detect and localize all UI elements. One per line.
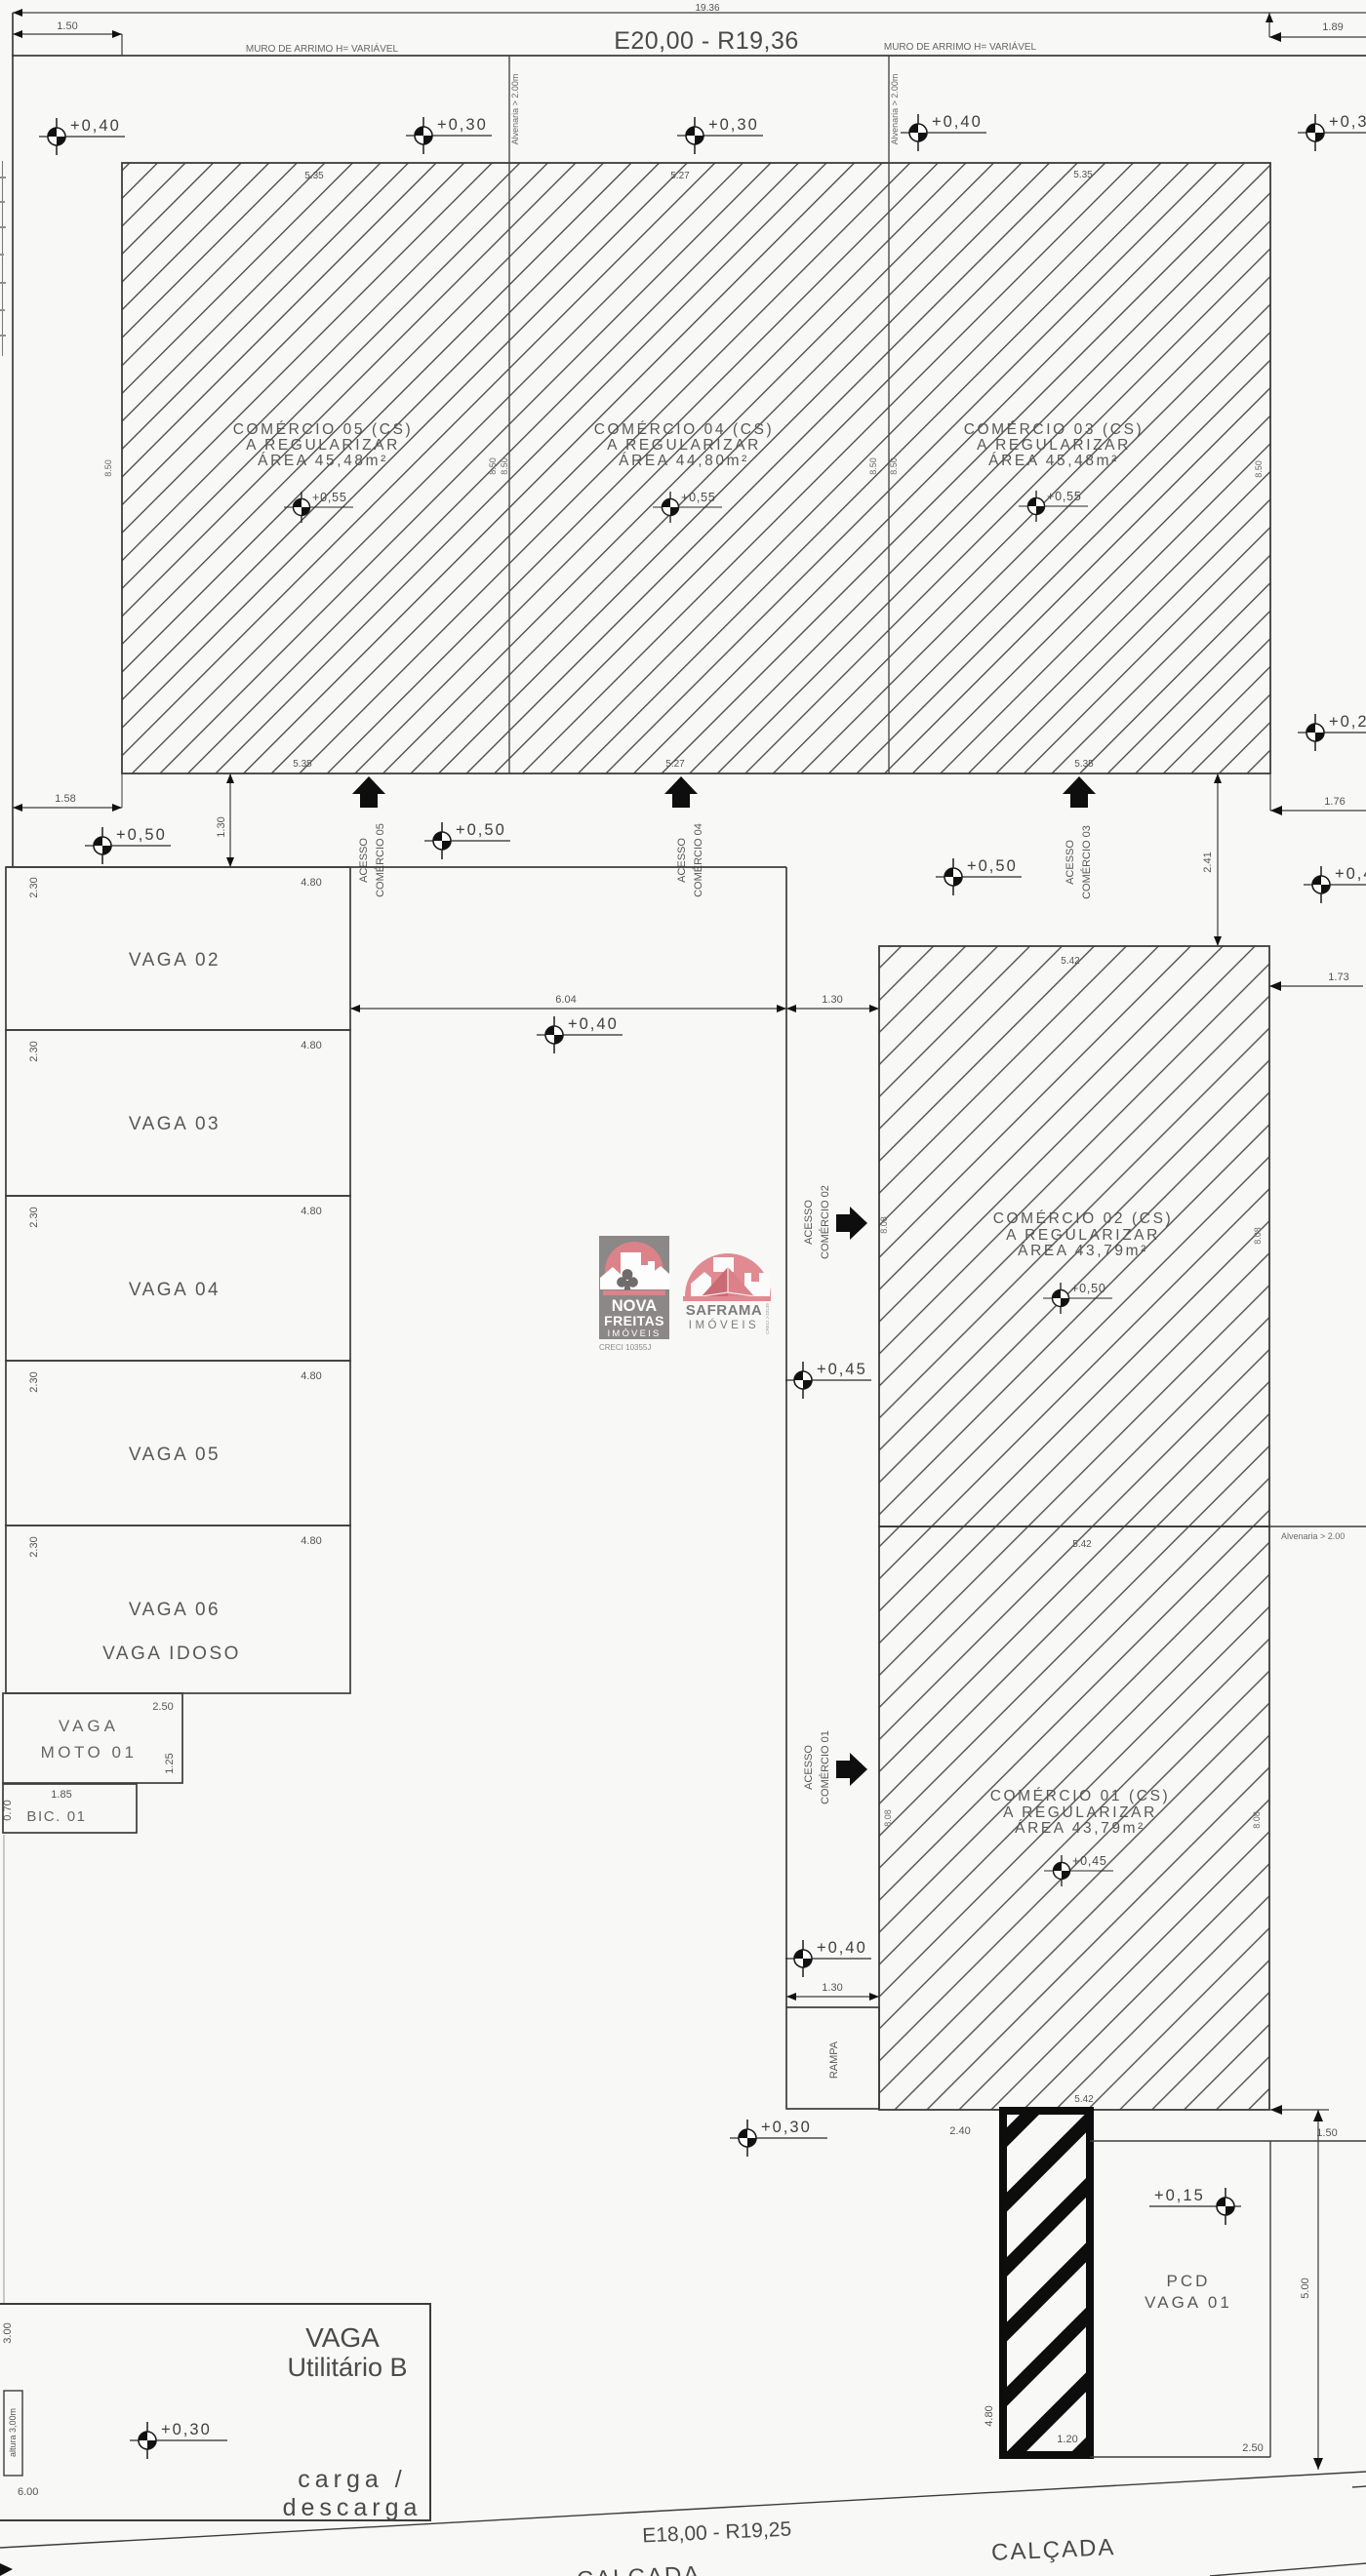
svg-text:8.08: 8.08 [879, 1216, 889, 1234]
svg-text:+0,25: +0,25 [1329, 713, 1366, 731]
svg-text:ACESSO: ACESSO [676, 838, 688, 883]
svg-text:COMÉRCIO 02 (CS): COMÉRCIO 02 (CS) [993, 1210, 1174, 1227]
svg-text:Alvenaria > 2.00m: Alvenaria > 2.00m [510, 74, 520, 145]
svg-text:ÁREA 44,80m²: ÁREA 44,80m² [619, 453, 749, 469]
svg-text:5.27: 5.27 [665, 759, 685, 770]
svg-text:COMÉRCIO 04: COMÉRCIO 04 [692, 823, 704, 897]
svg-text:5.35: 5.35 [304, 171, 324, 181]
svg-text:1.89: 1.89 [1322, 21, 1343, 33]
svg-text:5.35: 5.35 [293, 759, 312, 770]
svg-text:2.40: 2.40 [949, 2125, 970, 2137]
svg-text:SAFRAMA: SAFRAMA [686, 1302, 763, 1319]
svg-text:descarga: descarga [283, 2494, 422, 2521]
svg-text:ÁREA 43,79m²: ÁREA 43,79m² [1015, 1820, 1145, 1837]
svg-text:2.41: 2.41 [1202, 852, 1214, 872]
svg-text:8.50: 8.50 [103, 459, 113, 477]
svg-text:5.42: 5.42 [1061, 956, 1080, 967]
svg-text:CRECI J-23139: CRECI J-23139 [765, 1303, 770, 1334]
svg-text:+0,55: +0,55 [312, 491, 347, 504]
svg-text:COMÉRCIO 02: COMÉRCIO 02 [819, 1185, 831, 1259]
svg-text:+0,50: +0,50 [116, 826, 167, 844]
svg-text:VAGA IDOSO: VAGA IDOSO [102, 1644, 241, 1664]
svg-text:COMÉRCIO 03: COMÉRCIO 03 [1080, 825, 1093, 899]
svg-text:8.50: 8.50 [488, 457, 498, 475]
svg-text:FREITAS: FREITAS [604, 1313, 664, 1328]
svg-text:ÁREA 45,48m²: ÁREA 45,48m² [258, 453, 388, 469]
svg-text:COMÉRCIO 05 (CS): COMÉRCIO 05 (CS) [233, 421, 414, 438]
svg-text:2.30: 2.30 [28, 1041, 40, 1061]
svg-text:VAGA 04: VAGA 04 [129, 1280, 221, 1300]
svg-text:5.35: 5.35 [1073, 170, 1093, 180]
svg-text:VAGA 03: VAGA 03 [129, 1114, 221, 1134]
svg-text:1.30: 1.30 [216, 816, 227, 837]
svg-text:8.08: 8.08 [883, 1809, 893, 1827]
svg-text:COMÉRCIO 04 (CS): COMÉRCIO 04 (CS) [594, 421, 775, 438]
svg-text:+0,30: +0,30 [161, 2421, 212, 2438]
svg-text:8.50: 8.50 [1254, 460, 1264, 478]
svg-text:E20,00 - R19,36: E20,00 - R19,36 [614, 27, 799, 55]
svg-text:BIC. 01: BIC. 01 [26, 1808, 86, 1825]
svg-text:A REGULARIZAR: A REGULARIZAR [607, 437, 761, 454]
svg-text:+0,50: +0,50 [967, 857, 1018, 875]
svg-text:COMÉRCIO 03 (CS): COMÉRCIO 03 (CS) [964, 421, 1145, 438]
svg-text:+0,55: +0,55 [681, 491, 716, 504]
svg-text:VAGA: VAGA [59, 1717, 119, 1735]
svg-text:2.30: 2.30 [28, 1207, 40, 1227]
svg-text:Alvenaria > 2.00: Alvenaria > 2.00 [1281, 1531, 1345, 1541]
svg-text:+0,40: +0,40 [1335, 865, 1366, 883]
svg-text:8.50: 8.50 [500, 457, 509, 475]
svg-text:ACESSO: ACESSO [803, 1200, 815, 1245]
svg-text:4.80: 4.80 [301, 1535, 321, 1547]
svg-text:+0,40: +0,40 [932, 113, 983, 131]
svg-text:ÁREA 43,79m²: ÁREA 43,79m² [1018, 1243, 1148, 1259]
svg-text:MURO DE ARRIMO H= VARIÁVEL: MURO DE ARRIMO H= VARIÁVEL [246, 42, 399, 55]
svg-text:ACESSO: ACESSO [1065, 840, 1076, 885]
svg-text:ÁREA 45,48m²: ÁREA 45,48m² [988, 453, 1119, 469]
svg-text:1.30: 1.30 [822, 1982, 842, 1994]
svg-text:4.80: 4.80 [301, 877, 321, 889]
svg-text:1.76: 1.76 [1324, 796, 1345, 808]
svg-text:5.27: 5.27 [670, 171, 690, 181]
svg-text:VAGA 06: VAGA 06 [129, 1600, 221, 1620]
svg-text:+0,40: +0,40 [568, 1015, 619, 1033]
svg-text:CRECI 10355J: CRECI 10355J [599, 1343, 651, 1352]
svg-text:1.50: 1.50 [1316, 2127, 1337, 2139]
svg-text:A REGULARIZAR: A REGULARIZAR [977, 437, 1131, 454]
svg-text:8.50: 8.50 [868, 457, 878, 475]
svg-text:2.30: 2.30 [28, 877, 40, 897]
svg-text:+0,40: +0,40 [70, 117, 121, 135]
svg-text:+0,40: +0,40 [817, 1939, 867, 1957]
svg-text:0.70: 0.70 [2, 1800, 14, 1820]
svg-text:5.42: 5.42 [1074, 2094, 1094, 2105]
svg-text:Utilitário B: Utilitário B [287, 2353, 407, 2382]
svg-text:PCD: PCD [1167, 2272, 1211, 2290]
svg-text:1.50: 1.50 [57, 20, 77, 32]
svg-text:1.30: 1.30 [822, 994, 842, 1006]
svg-text:ACESSO: ACESSO [803, 1745, 815, 1790]
svg-text:+0,15: +0,15 [1154, 2187, 1205, 2204]
svg-text:4.80: 4.80 [301, 1370, 321, 1382]
svg-text:3.00: 3.00 [2, 2322, 14, 2343]
svg-text:6.04: 6.04 [555, 994, 576, 1006]
svg-text:COMÉRCIO 01 (CS): COMÉRCIO 01 (CS) [990, 1788, 1171, 1804]
svg-text:carga /: carga / [298, 2466, 406, 2493]
svg-text:Alvenaria > 2.00m: Alvenaria > 2.00m [890, 74, 900, 145]
svg-text:+0,50: +0,50 [456, 821, 506, 839]
svg-text:+0,30: +0,30 [1329, 113, 1366, 131]
svg-text:2.30: 2.30 [28, 1536, 40, 1557]
svg-text:VAGA 01: VAGA 01 [1145, 2293, 1232, 2312]
svg-text:1.58: 1.58 [55, 793, 75, 805]
svg-text:1.85: 1.85 [51, 1789, 71, 1801]
svg-text:19.36: 19.36 [695, 3, 719, 14]
svg-text:VAGA: VAGA [305, 2322, 380, 2353]
svg-text:+0,30: +0,30 [437, 116, 488, 134]
svg-text:A REGULARIZAR: A REGULARIZAR [1003, 1804, 1157, 1821]
svg-text:ACESSO: ACESSO [358, 838, 370, 883]
svg-text:CALÇADA: CALÇADA [990, 2534, 1115, 2566]
svg-text:MOTO 01: MOTO 01 [41, 1743, 138, 1762]
svg-text:A REGULARIZAR: A REGULARIZAR [246, 437, 400, 454]
svg-text:VAGA 02: VAGA 02 [129, 950, 221, 971]
svg-text:+0,30: +0,30 [761, 2119, 812, 2136]
svg-text:A REGULARIZAR: A REGULARIZAR [1006, 1227, 1160, 1244]
svg-text:5.42: 5.42 [1072, 1539, 1092, 1550]
svg-text:RAMPA: RAMPA [828, 2041, 840, 2079]
svg-text:altura 3,00m: altura 3,00m [8, 2408, 18, 2457]
svg-text:2.50: 2.50 [1242, 2442, 1263, 2454]
svg-text:+0,55: +0,55 [1047, 490, 1082, 503]
svg-text:8.08: 8.08 [1253, 1227, 1263, 1245]
svg-text:5.35: 5.35 [1074, 759, 1094, 770]
svg-text:MURO DE ARRIMO H= VARIÁVEL: MURO DE ARRIMO H= VARIÁVEL [884, 40, 1037, 53]
svg-text:1.20: 1.20 [1057, 2434, 1077, 2445]
svg-text:6.00: 6.00 [18, 2486, 38, 2498]
svg-text:+0,45: +0,45 [817, 1361, 867, 1378]
svg-text:1.25: 1.25 [164, 1753, 176, 1773]
svg-text:4.80: 4.80 [301, 1206, 321, 1217]
svg-text:+0,45: +0,45 [1072, 1854, 1107, 1868]
svg-text:+0,30: +0,30 [708, 116, 759, 134]
svg-text:1.73: 1.73 [1328, 971, 1348, 983]
svg-text:2.30: 2.30 [28, 1371, 40, 1392]
svg-text:+0,50: +0,50 [1071, 1282, 1106, 1295]
svg-text:8.08: 8.08 [1252, 1811, 1262, 1829]
svg-text:IMÓVEIS: IMÓVEIS [689, 1319, 759, 1331]
svg-text:8.50: 8.50 [889, 457, 899, 475]
svg-text:4.80: 4.80 [984, 2405, 995, 2426]
svg-text:COMÉRCIO 05: COMÉRCIO 05 [374, 823, 386, 897]
svg-text:2.50: 2.50 [152, 1701, 173, 1713]
svg-text:4.80: 4.80 [301, 1040, 321, 1051]
svg-text:VAGA 05: VAGA 05 [129, 1445, 221, 1465]
svg-text:COMÉRCIO 01: COMÉRCIO 01 [819, 1730, 831, 1804]
svg-text:5.00: 5.00 [1300, 2278, 1311, 2298]
svg-text:IMÓVEIS: IMÓVEIS [608, 1328, 662, 1339]
